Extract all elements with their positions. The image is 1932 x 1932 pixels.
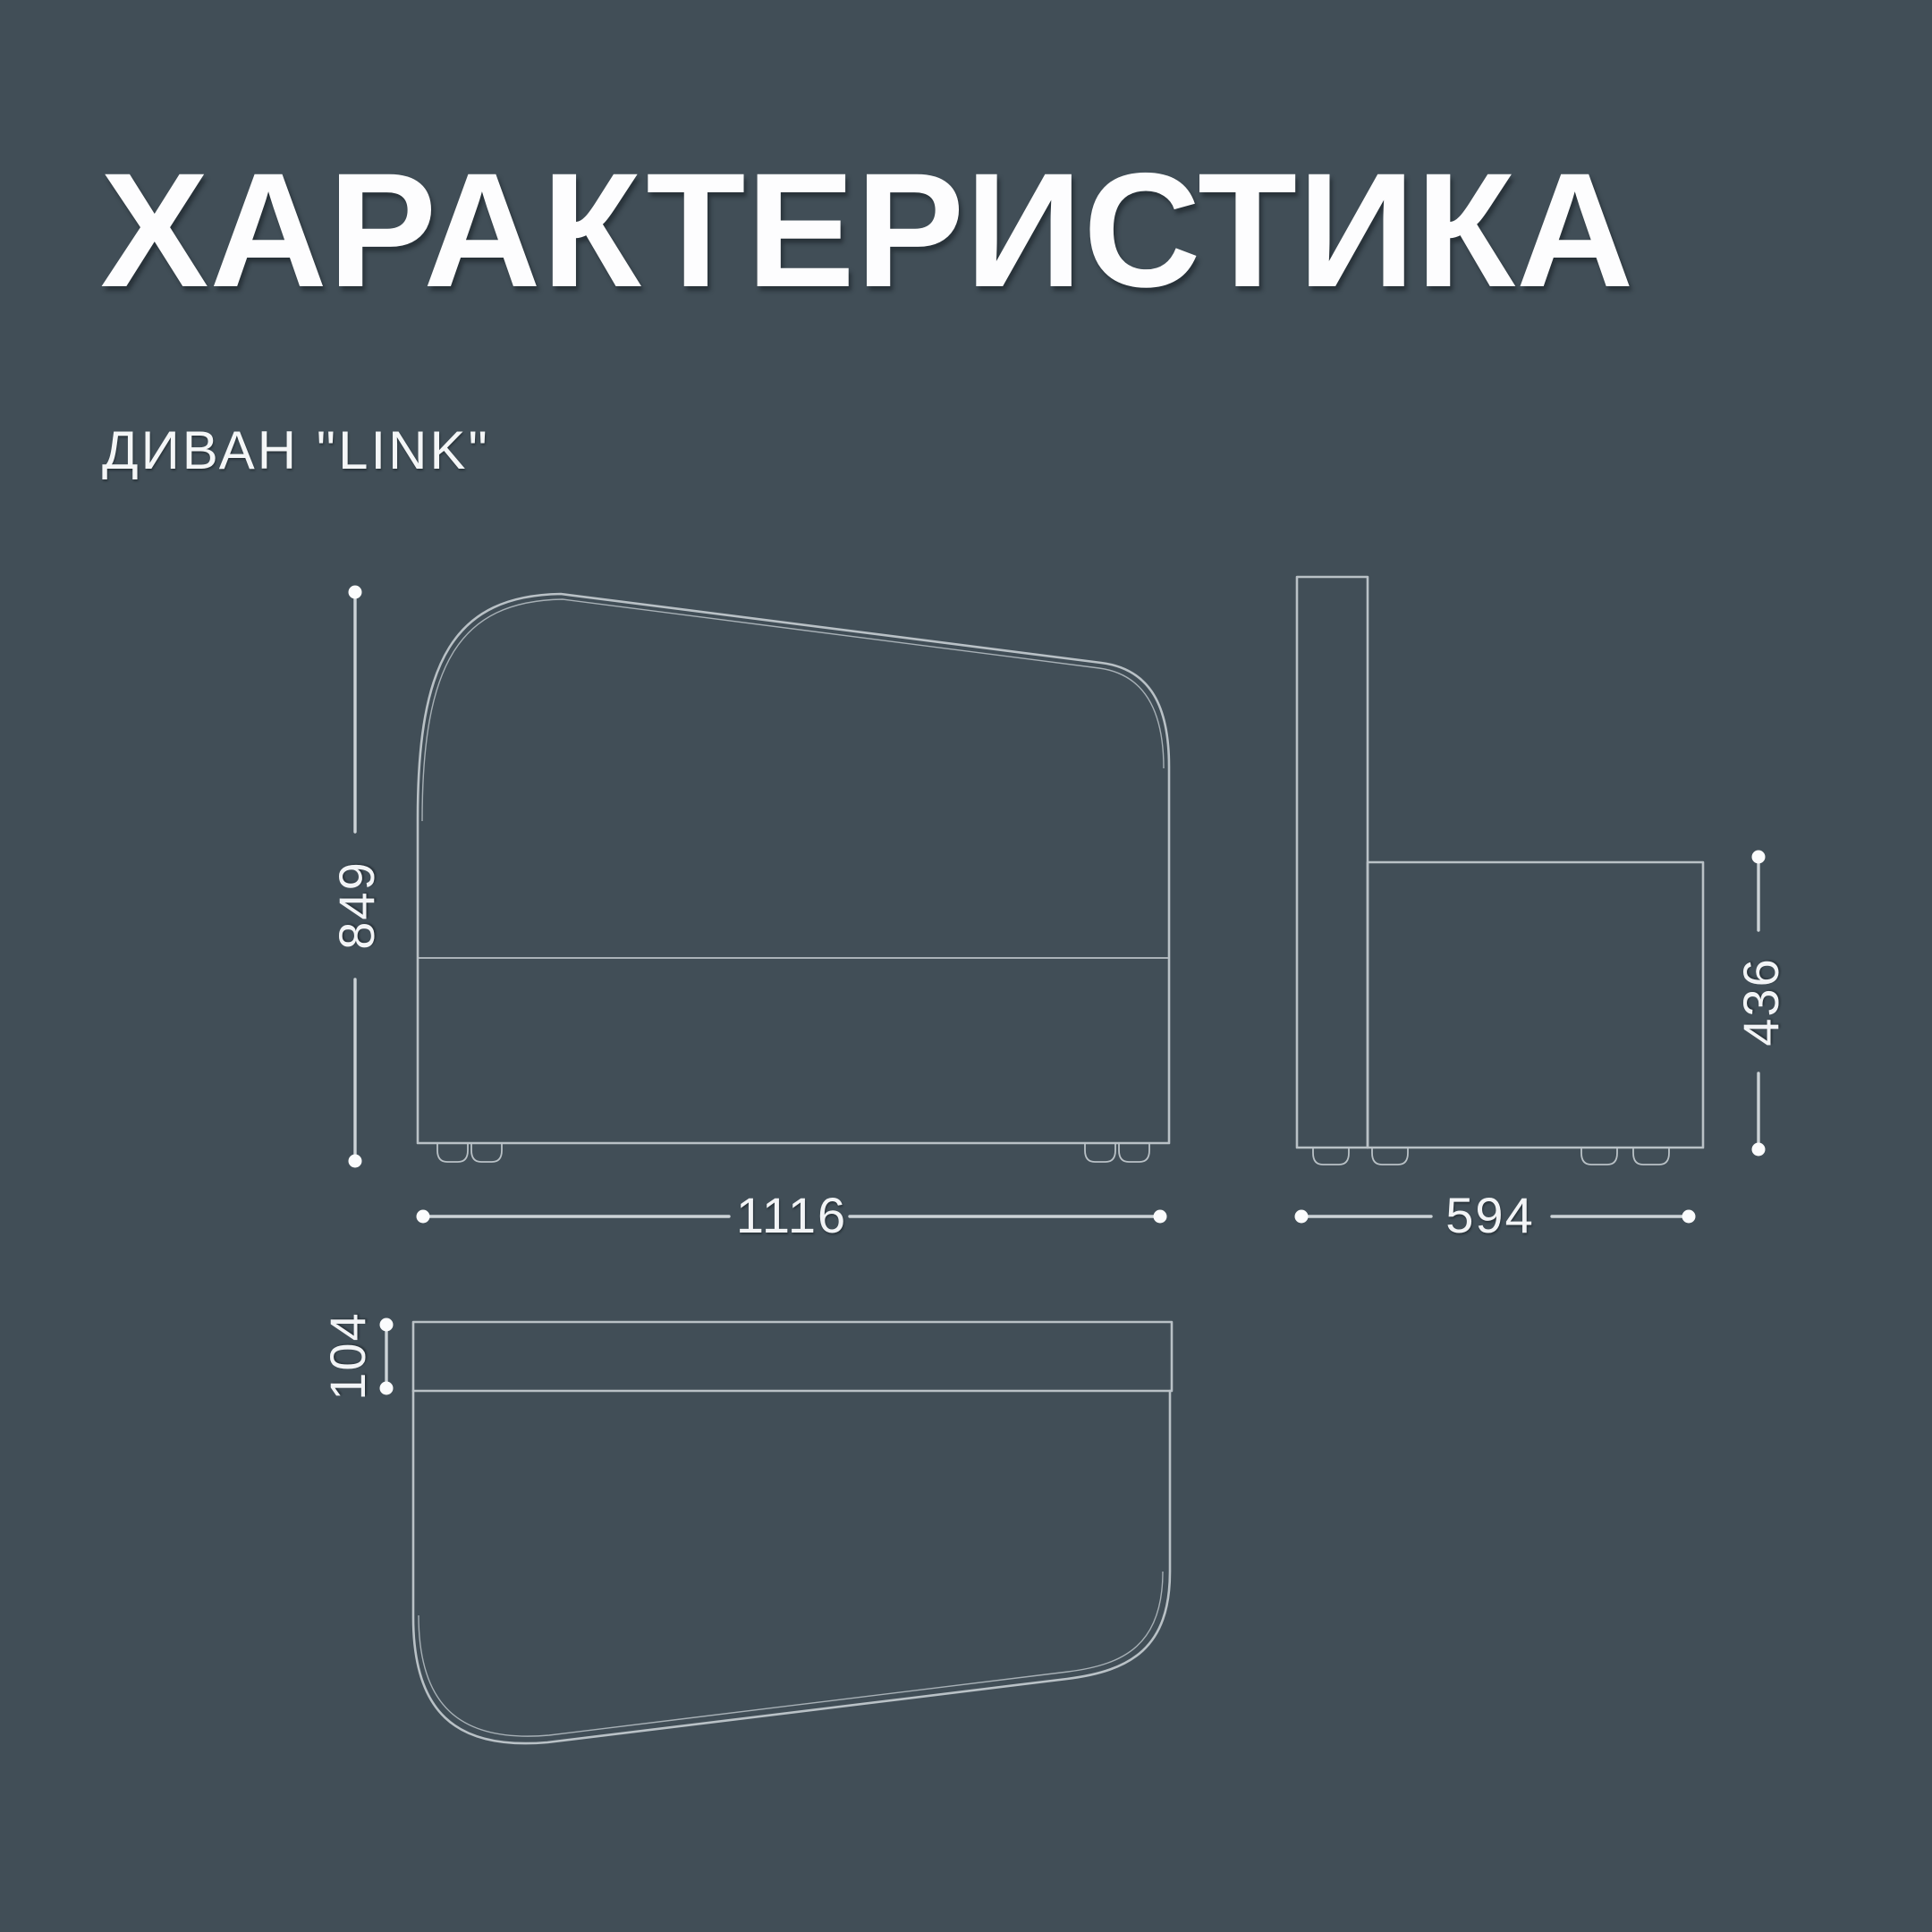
front-foot-right <box>1085 1143 1149 1162</box>
front-top-seam <box>422 599 1164 821</box>
dim-height-label: 849 <box>328 860 385 949</box>
dim-seat-height-label: 436 <box>1733 957 1789 1046</box>
dim-backrest-depth: 104 <box>319 1311 394 1400</box>
front-view <box>418 594 1169 1162</box>
side-seat <box>1368 862 1703 1148</box>
dim-width: 1116 <box>417 1187 1167 1243</box>
top-backrest-band <box>413 1322 1172 1391</box>
top-view <box>413 1322 1172 1743</box>
dim-height: 849 <box>328 586 385 1168</box>
dim-depth: 594 <box>1295 1187 1696 1243</box>
dimensions: 849 1116 594 436 <box>319 586 1789 1401</box>
dimension-drawing: 849 1116 594 436 <box>0 0 1932 1932</box>
front-outline <box>418 594 1169 1143</box>
side-backrest <box>1297 577 1368 1148</box>
side-feet <box>1313 1148 1669 1165</box>
front-foot-left <box>437 1143 502 1162</box>
side-view <box>1297 577 1703 1165</box>
dim-seat-height: 436 <box>1733 851 1789 1157</box>
top-body-outline <box>413 1391 1170 1743</box>
dim-backrest-depth-label: 104 <box>319 1311 376 1400</box>
dim-depth-label: 594 <box>1445 1187 1534 1243</box>
spec-sheet: ХАРАКТЕРИСТИКА ДИВАН "LINK" <box>0 0 1932 1932</box>
dim-width-label: 1116 <box>736 1187 847 1243</box>
